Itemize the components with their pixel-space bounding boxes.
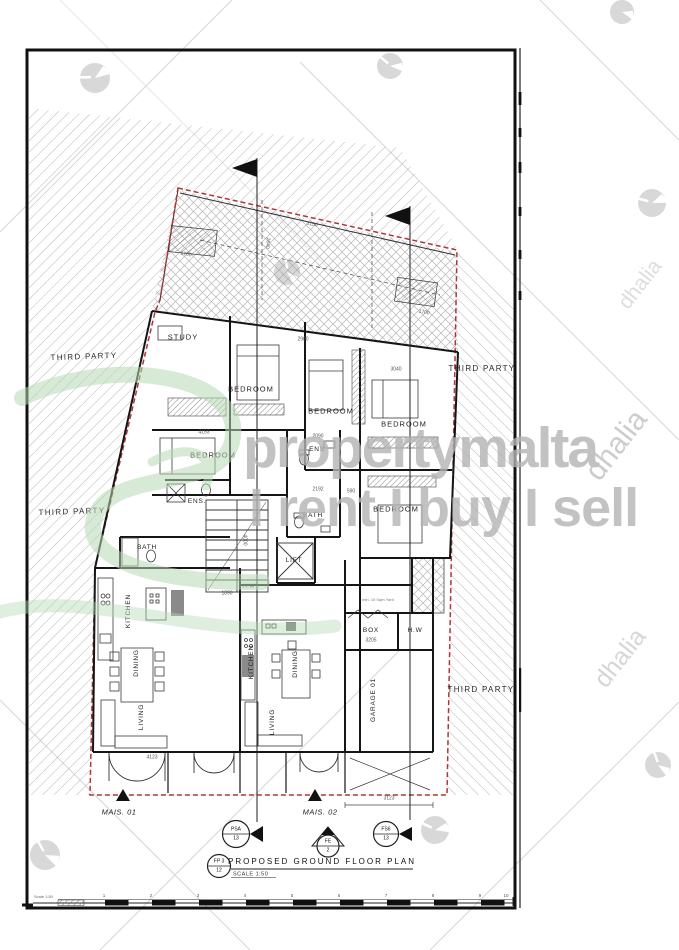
room-label-bedroom: BEDROOM: [308, 407, 354, 415]
plan-ref-marker: FP 3: [214, 860, 224, 865]
dimension: 3123: [383, 797, 394, 802]
section-marker-fs6-num: 13: [383, 837, 389, 842]
room-label-hw: H.W: [407, 628, 422, 635]
dimension: 590: [347, 490, 355, 495]
scale-tick: 7: [385, 894, 388, 899]
unit-label-mais02: MAIS. 02: [303, 808, 338, 816]
room-label-bedroom: BEDROOM: [190, 451, 236, 459]
scale-bar-label: Scale 1:50: [34, 895, 53, 899]
dimension: 2980: [297, 338, 308, 343]
dimension: 4193: [198, 431, 209, 436]
scale-tick: 4: [244, 894, 247, 899]
dimension: 1700: [180, 252, 192, 259]
third-party-label: THIRD PARTY: [50, 352, 117, 362]
dimension: 2192: [312, 488, 323, 493]
section-marker-psa-num: 13: [233, 837, 239, 842]
section-marker-fs6: FS6: [381, 828, 390, 833]
dimension: 3150: [306, 222, 318, 229]
room-label-bedroom: BEDROOM: [381, 420, 427, 428]
dimension: 4123: [146, 756, 157, 761]
scale-tick: 1: [103, 894, 106, 899]
section-marker-psa: PSA: [231, 828, 241, 833]
room-label-hw: H.W: [243, 584, 255, 590]
yard-note: min. 10 Sqm Yard: [362, 598, 394, 602]
room-label-garage: GARAGE 01: [371, 678, 378, 722]
room-label-box: BOX: [363, 628, 379, 635]
room-label-kitchen: KITCHEN: [126, 594, 133, 628]
unit-label-mais01: MAIS. 01: [102, 808, 137, 816]
scale-tick: 2: [150, 894, 153, 899]
room-label-living: LIVING: [139, 704, 146, 730]
room-label-bath: BATH: [137, 545, 157, 552]
scale-tick: 3: [197, 894, 200, 899]
scale-tick: 9: [479, 894, 482, 899]
room-label-living: LIVING: [270, 709, 277, 735]
scale-tick: 8: [432, 894, 435, 899]
entrance-marker-fe-num: 2: [327, 849, 330, 854]
room-label-bath: BATH: [303, 513, 323, 520]
scale-tick: 5: [291, 894, 294, 899]
dimension: 3205: [365, 639, 376, 644]
entrance-marker-fe: FE: [325, 840, 331, 845]
scale-tick: 10: [503, 894, 508, 899]
dimension: 4000: [242, 534, 247, 545]
third-party-label: THIRD PARTY: [448, 686, 515, 694]
dimension: 1890: [221, 592, 232, 597]
dimension: 2640: [264, 237, 270, 249]
dimension: 1700: [418, 310, 430, 317]
room-label-dining: DINING: [134, 649, 141, 677]
room-label-bedroom: BEDROOM: [228, 385, 274, 393]
room-label-study: STUDY: [168, 333, 198, 341]
plan-ref-marker-num: 12: [216, 869, 222, 874]
room-label-kitchen: KITCHEN: [249, 645, 256, 679]
labels-layer: THIRD PARTY THIRD PARTY THIRD PARTY THIR…: [0, 0, 679, 950]
room-label-ensuite: ENS: [309, 447, 325, 454]
third-party-label: THIRD PARTY: [38, 507, 105, 517]
room-label-ensuite: ENS.: [188, 499, 206, 506]
room-label-lift: LIFT: [286, 558, 303, 565]
third-party-label: THIRD PARTY: [449, 365, 516, 373]
floor-plan-page: THIRD PARTY THIRD PARTY THIRD PARTY THIR…: [0, 0, 679, 950]
plan-scale: SCALE 1:50: [233, 872, 268, 878]
scale-tick: 6: [338, 894, 341, 899]
dimension: 2090: [312, 435, 323, 440]
dimension: 3040: [390, 368, 401, 373]
room-label-dining: DINING: [293, 650, 300, 678]
room-label-bedroom: BEDROOM: [373, 505, 419, 513]
plan-title: PROPOSED GROUND FLOOR PLAN: [228, 858, 416, 866]
